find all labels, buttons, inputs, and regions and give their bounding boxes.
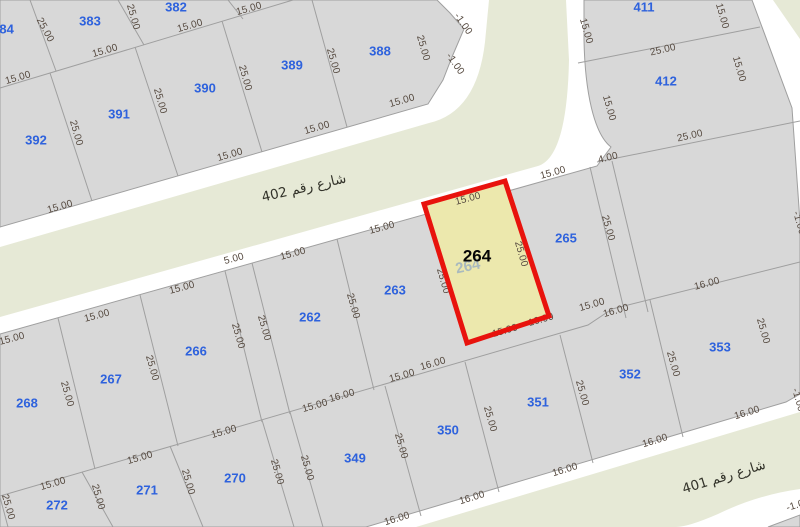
dimension-label: -1.00 [789, 387, 800, 413]
parcel-number-391: 391 [108, 106, 130, 121]
parcel-number-382: 382 [165, 0, 187, 14]
parcel-number-389: 389 [281, 57, 303, 72]
parcel-number-350: 350 [437, 422, 459, 437]
parcel-number-266: 266 [185, 343, 207, 358]
street-northeast-corner-band [773, 0, 800, 39]
parcel-number-412: 412 [655, 73, 677, 88]
parcel-number-411: 411 [634, 0, 655, 14]
parcel-number-264-bold: 264 [463, 246, 492, 265]
parcel-number-353: 353 [709, 339, 731, 354]
parcel-number-263: 263 [384, 282, 406, 297]
parcel-number-349: 349 [344, 450, 366, 465]
parcel-number-384: 384 [0, 21, 15, 36]
parcel-number-272: 272 [46, 497, 68, 512]
parcel-number-352: 352 [619, 366, 641, 381]
parcel-number-268: 268 [16, 395, 38, 410]
parcel-number-392: 392 [25, 132, 47, 147]
parcel-number-267: 267 [100, 371, 122, 386]
dimension-label: 5.00 [223, 251, 246, 267]
parcel-number-390: 390 [194, 80, 216, 95]
parcel-number-388: 388 [369, 43, 391, 58]
parcel-number-383: 383 [79, 13, 101, 28]
cadastral-map-canvas[interactable]: 25.0025.0015.0015.0015.0015.0025.0025.00… [0, 0, 800, 527]
parcel-number-351: 351 [527, 394, 549, 409]
block-corner-bottom-right [768, 515, 800, 527]
parcel-number-270: 270 [224, 470, 246, 485]
parcel-number-262: 262 [299, 309, 321, 324]
parcel-number-271: 271 [136, 482, 158, 497]
parcel-number-265: 265 [555, 230, 577, 245]
map-viewport[interactable]: 25.0025.0015.0015.0015.0015.0025.0025.00… [0, 0, 800, 527]
dimension-label: -1.00 [785, 496, 800, 514]
